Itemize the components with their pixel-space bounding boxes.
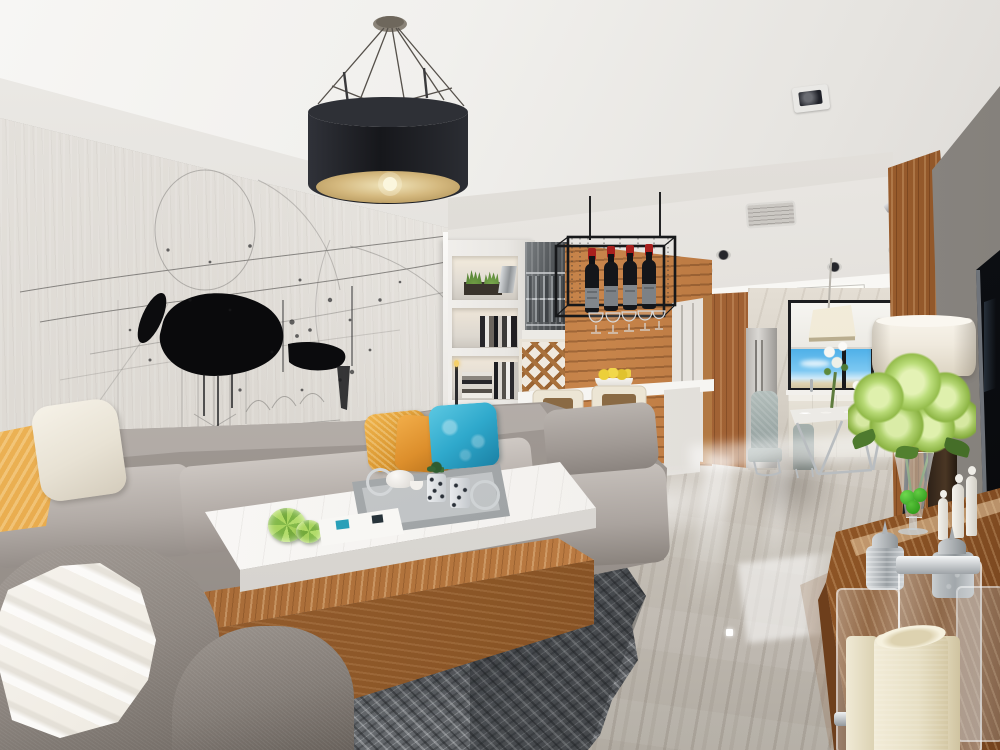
spotlight-1 bbox=[716, 250, 731, 260]
mirror-base bbox=[522, 330, 570, 339]
tray-cactus bbox=[427, 461, 444, 477]
candle-front-big bbox=[874, 634, 948, 750]
figurine-2-head bbox=[955, 474, 963, 483]
living-room-scene bbox=[0, 0, 1000, 750]
figurine-3 bbox=[966, 476, 977, 536]
tray-handle-right bbox=[470, 480, 500, 510]
pillow-teal bbox=[428, 402, 500, 471]
kitchen-faucet bbox=[810, 379, 813, 392]
mirror-glassware bbox=[527, 276, 566, 322]
mirror-shelf-1 bbox=[526, 272, 567, 274]
floor-dark-reflection bbox=[745, 442, 840, 527]
floor-sparkle bbox=[726, 629, 733, 636]
figurine-2 bbox=[952, 484, 964, 538]
candlestick-flame bbox=[454, 360, 459, 367]
hurricane-right bbox=[956, 586, 1000, 742]
mirror-shelf-3 bbox=[526, 324, 567, 326]
pillow-cream-left bbox=[30, 396, 129, 503]
speckled-cup-1 bbox=[427, 474, 446, 502]
vase-green-ball-3 bbox=[906, 500, 920, 514]
floor-lamp-shade-top bbox=[876, 315, 972, 327]
magazine-image-1 bbox=[336, 519, 350, 530]
figurine-1-head bbox=[940, 490, 947, 498]
silver-jar-2-lid bbox=[938, 538, 966, 554]
candlestick bbox=[455, 366, 458, 408]
figurine-3-head bbox=[968, 466, 976, 475]
hurricane-big-rim bbox=[896, 556, 980, 574]
shelf-books-vertical bbox=[494, 362, 518, 399]
magazine-image-2 bbox=[372, 514, 384, 523]
succulent-small bbox=[296, 520, 322, 543]
tv-reflection bbox=[984, 298, 996, 392]
speckled-cup-2 bbox=[450, 478, 470, 508]
ac-vent bbox=[745, 200, 797, 228]
shelf-book-stack bbox=[462, 372, 492, 398]
fruit-yellow bbox=[598, 368, 631, 380]
figurine-1 bbox=[938, 498, 948, 540]
shelf-books-row bbox=[480, 316, 517, 347]
silver-jar-1-lid bbox=[872, 532, 898, 548]
vase-base bbox=[898, 528, 928, 535]
square-spotlight-lamp bbox=[798, 90, 823, 107]
